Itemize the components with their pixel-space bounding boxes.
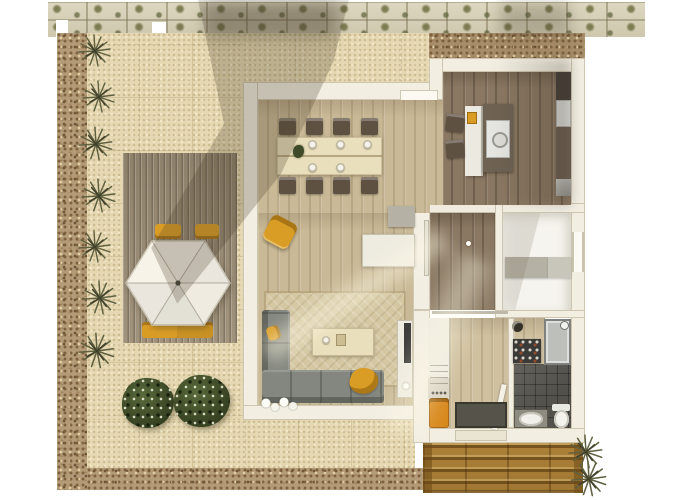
kitchen-shadow-overlay (495, 58, 571, 205)
shower-head-icon (561, 322, 568, 329)
grass-icon (80, 278, 120, 318)
dining-chair (306, 118, 323, 135)
garden-sand-bottom (87, 420, 415, 468)
grass-icon (76, 330, 118, 372)
grass-icon (568, 458, 610, 500)
plate (363, 140, 372, 149)
porch-deck (423, 443, 583, 493)
dining-chair (361, 118, 378, 135)
dining-chair (333, 118, 350, 135)
island-decor-yellow (467, 112, 477, 124)
floor-plan (0, 0, 700, 500)
shoe-rack (513, 339, 541, 363)
grass-icon (76, 32, 114, 70)
grass-icon (79, 176, 119, 216)
floor-spot (466, 241, 471, 246)
bar-stool (445, 139, 465, 159)
paver-shadow-overlay (205, 2, 335, 37)
grass-icon (76, 124, 116, 164)
bedroom-window (572, 232, 584, 272)
grass-icon (80, 78, 118, 116)
threshold-kitchen-hall (430, 205, 495, 213)
gray-cabinet (388, 206, 415, 227)
dining-chair (306, 177, 323, 194)
wall-bedroom-left (495, 203, 503, 318)
bar-stool (445, 113, 465, 133)
plate (308, 163, 317, 172)
dining-chair (333, 177, 350, 194)
dining-chair (279, 177, 296, 194)
wall-bedroom-bottom (495, 310, 585, 318)
dining-chair (361, 177, 378, 194)
grass-icon (76, 228, 114, 266)
bathroom-sink (519, 412, 543, 426)
toilet-bowl (554, 410, 569, 428)
paver-shadow-overlay (500, 2, 570, 37)
plate (336, 140, 345, 149)
doormat (455, 402, 507, 428)
plate (336, 163, 345, 172)
white-flowers (260, 394, 302, 412)
plate (308, 140, 317, 149)
bedroom-dresser-right (548, 257, 571, 278)
bowl-object (512, 321, 523, 332)
gravel-strip-bottom (87, 468, 427, 490)
table-decor (336, 334, 346, 346)
front-door-sill (455, 430, 507, 441)
